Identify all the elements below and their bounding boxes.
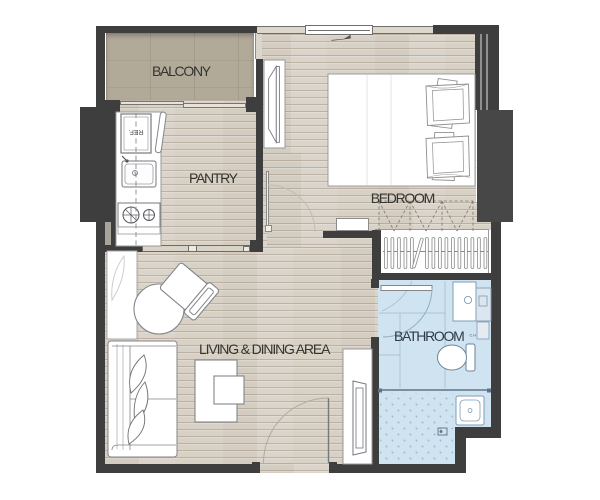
svg-text:C.H: C.H [470, 334, 477, 338]
